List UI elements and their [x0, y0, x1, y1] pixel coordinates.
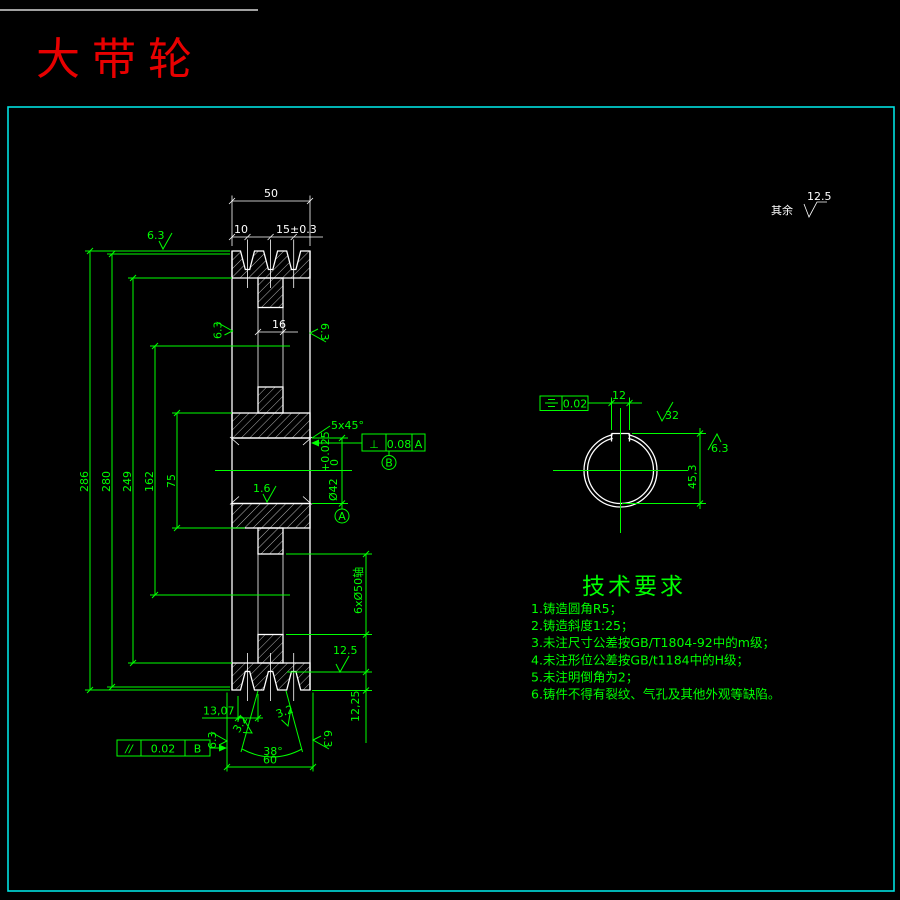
general-roughness-value: 12.5 — [807, 190, 832, 203]
svg-text:6.3: 6.3 — [206, 732, 219, 750]
roughness-default-icon: 12.5 — [804, 190, 832, 217]
dim-bore-tol-lower: 0 — [328, 459, 341, 466]
svg-text:3.2: 3.2 — [274, 703, 295, 721]
hub-section — [232, 413, 310, 438]
dim-bottom-width: 60 — [263, 754, 277, 767]
svg-text:6.3: 6.3 — [321, 730, 334, 748]
hub-section — [232, 504, 310, 529]
svg-text:6.3: 6.3 — [147, 229, 165, 242]
symmetry-frame: 0.02 — [540, 396, 610, 411]
roughness-side-face-icon: 6.3 — [313, 730, 334, 749]
datum-b-label: B — [385, 457, 393, 470]
dim-bore: Ø42 — [327, 478, 340, 501]
datum-a-label: A — [338, 510, 346, 523]
roughness-outer-icon: 6.3 — [147, 229, 172, 249]
roughness-bore-icon: 1.6 — [253, 482, 276, 502]
tech-req-item: 3.未注尺寸公差按GB/T1804-92中的m级； — [531, 635, 775, 650]
dim-keyway-width: 12 — [612, 389, 626, 402]
dim-groove-depth: 12,25 — [349, 691, 362, 723]
symmetry-icon — [545, 400, 558, 407]
web-section — [258, 528, 283, 554]
dim-dia-outer: 286 — [78, 471, 91, 492]
technical-requirements: 技术要求 1.铸造圆角R5； 2.铸造斜度1:25； 3.未注尺寸公差按GB/T… — [531, 574, 780, 702]
dim-dia-hub: 75 — [165, 474, 178, 488]
parallelism-value: 0.02 — [151, 743, 176, 756]
dim-holes: 6xØ50轴 — [351, 567, 365, 614]
parallelism-icon: // — [124, 743, 134, 756]
roughness-keyway-side-icon: 6.3 — [708, 434, 729, 455]
roughness-side-face-icon: 6.3 — [206, 732, 227, 750]
tech-req-title: 技术要求 — [582, 574, 686, 600]
chamfer-text: 5x45° — [331, 419, 364, 432]
dim-dia-pitch: 280 — [100, 471, 113, 492]
dim-keyway-depth: 45,3 — [686, 465, 699, 490]
roughness-groove-face-icon: 12.5 — [333, 644, 358, 672]
dim-dia-rim-inner: 249 — [121, 471, 134, 492]
roughness-keyway-icon: 32 — [657, 402, 679, 422]
keyway-side-view: 12 45,3 0.02 32 6.3 — [540, 389, 729, 533]
symmetry-value: 0.02 — [563, 398, 588, 411]
drawing-svg: 大带轮 — [0, 0, 900, 900]
web-section — [258, 387, 283, 413]
svg-text:1.6: 1.6 — [253, 482, 271, 495]
dim-groove-pitch: 15±0.3 — [276, 223, 317, 236]
tech-req-item: 2.铸造斜度1:25； — [531, 618, 634, 633]
leader-arrow — [219, 745, 227, 752]
dim-groove-offset: 10 — [234, 223, 248, 236]
general-roughness-label: 其余 — [771, 203, 793, 217]
roughness-side-face-icon: 6.3 — [212, 322, 233, 340]
tech-req-item: 1.铸造圆角R5； — [531, 601, 622, 616]
cad-viewport: 大带轮 — [0, 0, 900, 900]
general-roughness-note: 其余 12.5 — [771, 190, 832, 217]
perpendicularity-datum: A — [415, 438, 423, 451]
dim-groove-loc: 13,07 — [203, 705, 235, 718]
roughness-side-face-icon: 6.3 — [310, 323, 331, 342]
roughness-flank-icon: 3.2 — [274, 703, 298, 729]
svg-text:12.5: 12.5 — [333, 644, 358, 657]
tech-req-item: 4.未注形位公差按GB/t1184中的H级； — [531, 653, 749, 668]
leader-arrow — [311, 440, 319, 447]
svg-text:32: 32 — [665, 409, 679, 422]
perpendicularity-value: 0.08 — [387, 438, 412, 451]
drawing-border — [8, 107, 894, 891]
dim-width: 50 — [264, 187, 278, 200]
svg-text:6.3: 6.3 — [318, 323, 331, 341]
dim-web-thickness: 16 — [272, 318, 286, 331]
svg-text:6.3: 6.3 — [711, 442, 729, 455]
svg-text:6.3: 6.3 — [212, 322, 225, 340]
page-title: 大带轮 — [36, 34, 204, 85]
parallelism-datum: B — [194, 743, 202, 756]
tech-req-item: 5.未注明倒角为2； — [531, 670, 638, 685]
dim-dia-hole-circle: 162 — [143, 471, 156, 492]
perpendicularity-icon: ⊥ — [369, 438, 379, 451]
tech-req-item: 6.铸件不得有裂纹、气孔及其他外观等缺陷。 — [531, 687, 780, 702]
